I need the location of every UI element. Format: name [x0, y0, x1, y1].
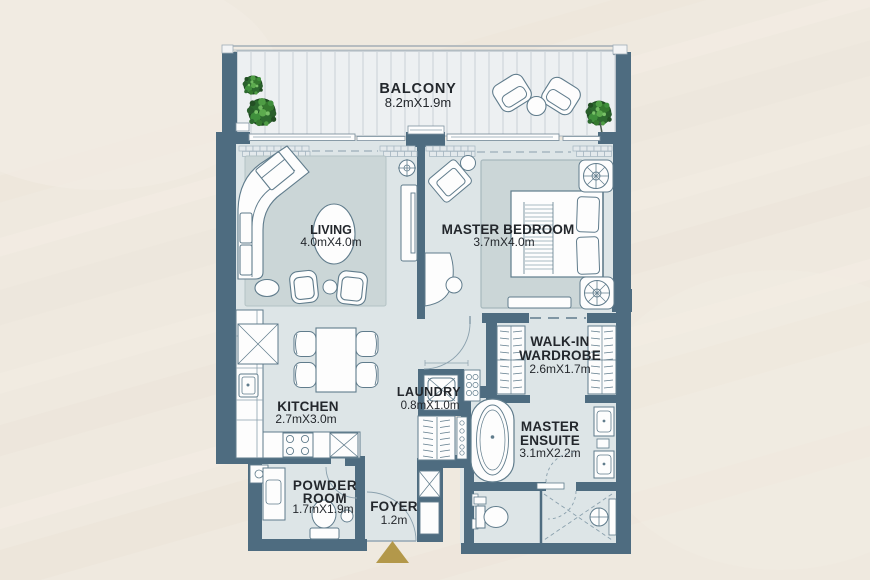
svg-text:3.1mX2.2m: 3.1mX2.2m — [519, 446, 580, 460]
svg-text:1.7mX1.9m: 1.7mX1.9m — [292, 502, 353, 516]
svg-text:LAUNDRY: LAUNDRY — [397, 385, 461, 399]
svg-text:WALK-IN: WALK-IN — [530, 334, 589, 349]
svg-text:FOYER: FOYER — [370, 499, 418, 514]
svg-text:8.2mX1.9m: 8.2mX1.9m — [385, 95, 451, 110]
svg-text:0.8mX1.0m: 0.8mX1.0m — [401, 400, 460, 412]
svg-text:2.7mX3.0m: 2.7mX3.0m — [275, 412, 336, 426]
svg-text:2.6mX1.7m: 2.6mX1.7m — [529, 362, 590, 376]
svg-text:1.2m: 1.2m — [381, 513, 408, 527]
svg-text:MASTER: MASTER — [521, 419, 579, 434]
svg-text:WARDROBE: WARDROBE — [519, 348, 601, 363]
svg-text:3.7mX4.0m: 3.7mX4.0m — [473, 235, 534, 249]
svg-text:4.0mX4.0m: 4.0mX4.0m — [300, 235, 361, 249]
